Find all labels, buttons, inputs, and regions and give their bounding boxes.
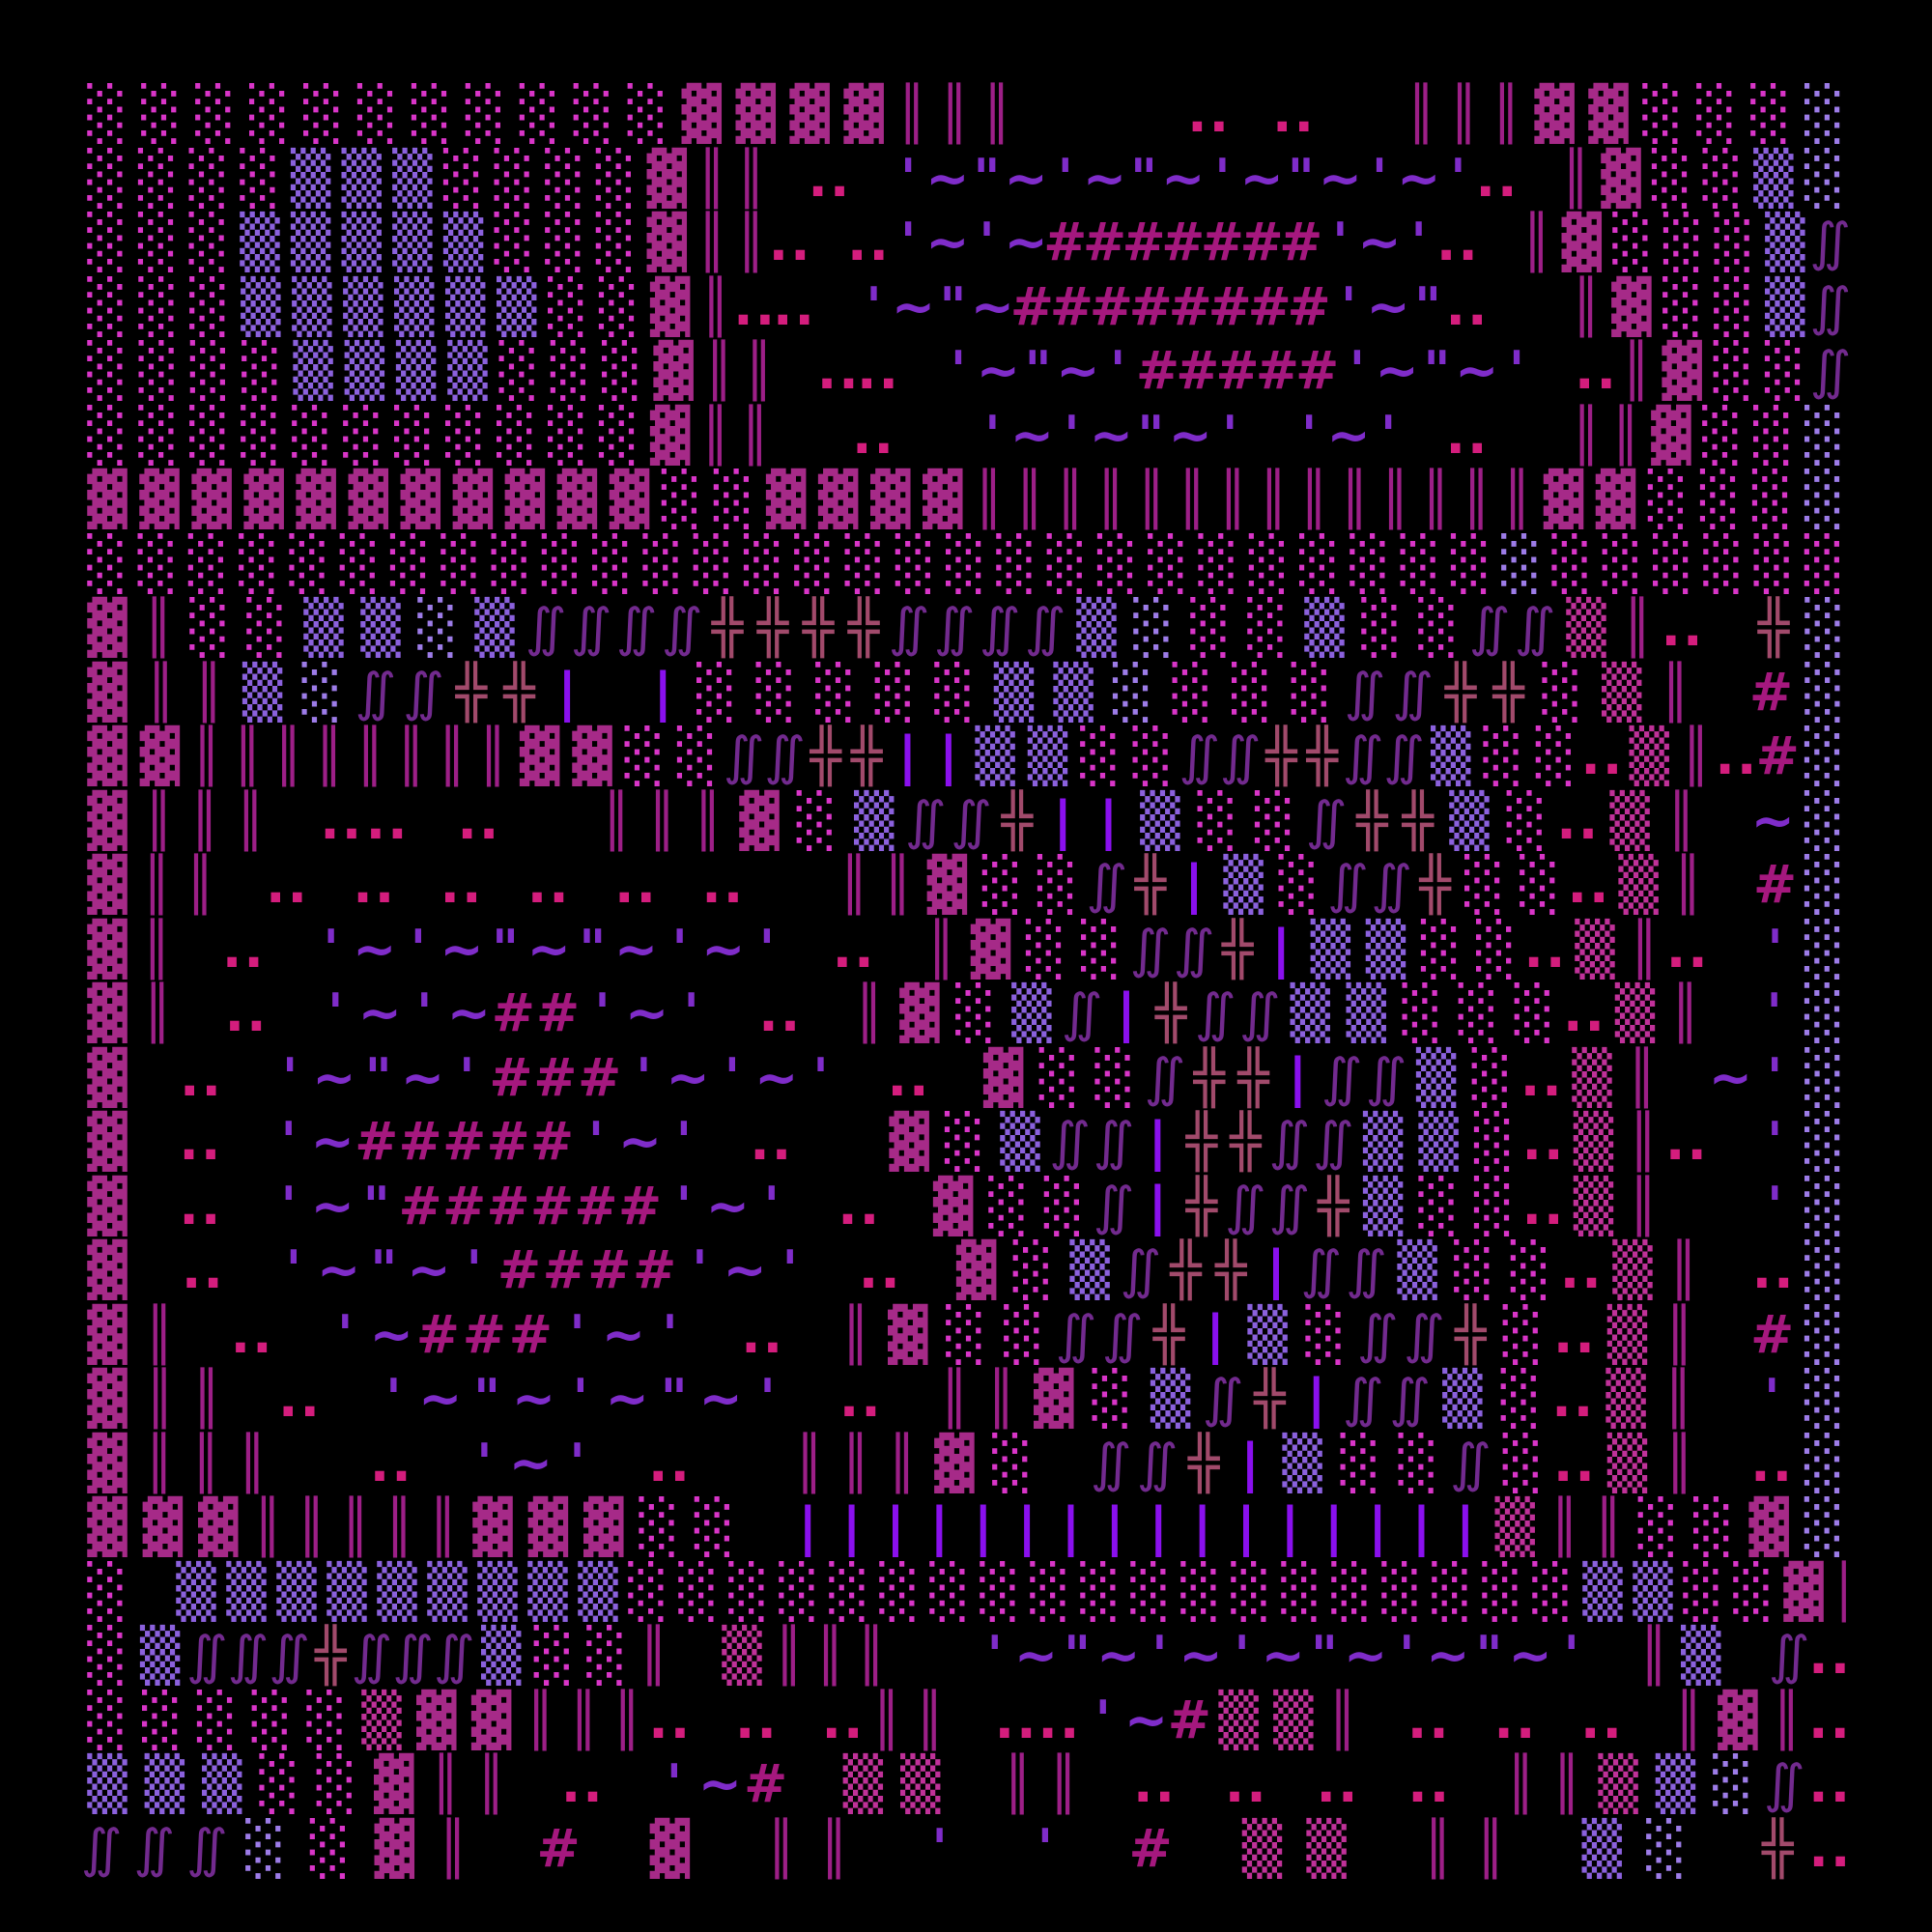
glyph-cell: ╬ bbox=[1758, 1817, 1797, 1881]
glyph-cell: ▒ bbox=[336, 211, 386, 274]
glyph-cell bbox=[1667, 1175, 1706, 1238]
glyph-cell: ░ bbox=[869, 661, 920, 724]
glyph-cell: ║ bbox=[472, 1752, 511, 1816]
glyph-cell: ▒ bbox=[1285, 981, 1335, 1045]
glyph-cell: ║ bbox=[1471, 1817, 1510, 1881]
glyph-cell: ∬ bbox=[435, 1624, 473, 1688]
glyph-cell: ░ bbox=[1125, 1560, 1176, 1624]
art-row: ░░░▒▒▒▒▒▒░░▓║.... '~"~########'~".. ║▓░░… bbox=[82, 275, 1850, 339]
glyph-cell: ║ bbox=[433, 724, 471, 788]
glyph-cell: ░ bbox=[284, 532, 334, 596]
glyph-cell: ║ bbox=[1051, 468, 1090, 531]
glyph-cell: ░ bbox=[439, 147, 489, 211]
glyph-cell: ░ bbox=[1039, 1175, 1090, 1238]
glyph-cell: ░ bbox=[1090, 1046, 1140, 1110]
glyph-cell: ║ bbox=[1768, 1689, 1806, 1752]
glyph-cell: ▒ bbox=[238, 661, 288, 724]
glyph-cell: ' bbox=[1321, 211, 1359, 274]
glyph-cell: ╬ bbox=[1167, 1238, 1206, 1302]
glyph-grid: ░░░░░░░░░░░▓▓▓▓║║║ .. .. ║║║▓▓░░░░░░░░▒▒… bbox=[82, 82, 1850, 1881]
glyph-cell: ║ bbox=[351, 724, 389, 788]
glyph-cell: ∬ bbox=[572, 596, 611, 660]
glyph-cell: ▓ bbox=[239, 468, 289, 531]
glyph-cell: ~ bbox=[700, 1752, 739, 1816]
glyph-cell: .. bbox=[184, 1238, 222, 1302]
glyph-cell: ▓ bbox=[1713, 1689, 1763, 1752]
glyph-cell: ▓ bbox=[929, 1432, 980, 1495]
glyph-cell: ∬ bbox=[1347, 1238, 1385, 1302]
glyph-cell bbox=[790, 1303, 829, 1367]
glyph-cell: ╬ bbox=[1303, 724, 1342, 788]
glyph-cell: ~ bbox=[1369, 275, 1407, 339]
glyph-cell: ~ bbox=[725, 1238, 764, 1302]
glyph-cell: ∬ bbox=[1146, 1046, 1184, 1110]
glyph-cell: ~ bbox=[442, 918, 481, 981]
glyph-cell: ░ bbox=[1294, 532, 1345, 596]
glyph-cell: ░ bbox=[1413, 1175, 1463, 1238]
glyph-cell: ▒ bbox=[1561, 596, 1611, 660]
glyph-cell: ~ bbox=[1753, 789, 1792, 853]
glyph-cell: ░ bbox=[1698, 532, 1748, 596]
glyph-cell: ∬ bbox=[952, 789, 990, 853]
glyph-cell: ░ bbox=[1395, 532, 1445, 596]
glyph-cell: ∬ bbox=[1051, 1110, 1090, 1174]
glyph-cell: ∬ bbox=[906, 789, 945, 853]
glyph-cell: ░ bbox=[1075, 1560, 1125, 1624]
glyph-cell bbox=[695, 1689, 733, 1752]
glyph-cell: ║ bbox=[1634, 1624, 1673, 1688]
glyph-cell: ▓ bbox=[134, 468, 185, 531]
glyph-cell: ░ bbox=[1747, 468, 1798, 531]
glyph-cell bbox=[1063, 82, 1101, 146]
glyph-cell: # bbox=[357, 1110, 396, 1174]
glyph-cell: " bbox=[933, 275, 972, 339]
glyph-cell: ░ bbox=[1800, 468, 1850, 531]
glyph-cell: ~ bbox=[355, 918, 394, 981]
glyph-cell bbox=[1184, 1817, 1223, 1881]
glyph-cell: ║ bbox=[981, 1367, 1020, 1431]
glyph-cell: .. bbox=[224, 918, 263, 981]
glyph-cell: # bbox=[489, 1175, 527, 1238]
glyph-cell bbox=[1712, 853, 1750, 917]
glyph-cell: ∬ bbox=[1057, 1303, 1095, 1367]
glyph-cell: | bbox=[1175, 853, 1213, 917]
glyph-cell: ║ bbox=[810, 1624, 849, 1688]
glyph-cell: .. bbox=[776, 275, 814, 339]
glyph-cell: ▒ bbox=[1218, 853, 1268, 917]
glyph-cell: ░ bbox=[185, 596, 235, 660]
glyph-cell: ~ bbox=[704, 918, 743, 981]
glyph-cell: ░ bbox=[440, 404, 491, 468]
glyph-cell bbox=[229, 1238, 268, 1302]
glyph-cell: ∬ bbox=[1451, 1432, 1490, 1495]
glyph-cell: ~ bbox=[608, 1367, 646, 1431]
glyph-cell: ▓ bbox=[979, 1046, 1029, 1110]
glyph-cell: ∬ bbox=[1092, 1432, 1130, 1495]
glyph-cell: ▓ bbox=[395, 468, 445, 531]
glyph-cell: ∬ bbox=[1470, 596, 1509, 660]
glyph-cell: ░ bbox=[657, 468, 707, 531]
glyph-cell: # bbox=[1290, 275, 1328, 339]
glyph-cell bbox=[183, 981, 221, 1045]
glyph-cell: ▓ bbox=[369, 1752, 419, 1816]
glyph-cell: | bbox=[1052, 1495, 1091, 1559]
glyph-cell bbox=[697, 1303, 736, 1367]
glyph-cell: ░ bbox=[1760, 339, 1810, 403]
glyph-cell: " bbox=[359, 1046, 398, 1110]
glyph-cell bbox=[1709, 596, 1747, 660]
glyph-cell: ▒ bbox=[372, 1560, 422, 1624]
glyph-cell: | bbox=[1138, 1110, 1177, 1174]
glyph-cell bbox=[1518, 147, 1556, 211]
glyph-cell: ║ bbox=[1567, 275, 1605, 339]
glyph-cell: ~ bbox=[1511, 1624, 1549, 1688]
glyph-cell: ║ bbox=[1497, 468, 1536, 531]
glyph-cell: ░ bbox=[543, 404, 593, 468]
glyph-cell: ~ bbox=[1127, 1689, 1166, 1752]
glyph-cell: .. bbox=[182, 1175, 220, 1238]
glyph-cell: ~ bbox=[511, 1432, 550, 1495]
glyph-cell bbox=[867, 1817, 906, 1881]
glyph-cell: ░ bbox=[136, 82, 186, 146]
glyph-cell bbox=[1367, 1689, 1406, 1752]
glyph-cell: ' bbox=[1290, 404, 1328, 468]
glyph-cell: ░ bbox=[1192, 789, 1242, 853]
glyph-cell bbox=[1364, 1752, 1403, 1816]
glyph-cell: ░ bbox=[999, 1303, 1049, 1367]
glyph-cell: ║ bbox=[1656, 661, 1694, 724]
glyph-cell bbox=[486, 853, 525, 917]
glyph-cell: .. bbox=[1570, 853, 1608, 917]
glyph-cell: ░ bbox=[1286, 661, 1336, 724]
glyph-cell: ~ bbox=[894, 275, 932, 339]
glyph-cell: ▓ bbox=[1529, 82, 1579, 146]
glyph-cell: ║ bbox=[922, 918, 960, 981]
glyph-cell: ░ bbox=[192, 1689, 242, 1752]
glyph-cell bbox=[1707, 1432, 1746, 1495]
glyph-cell: ▓ bbox=[884, 1110, 934, 1174]
glyph-cell: ∬ bbox=[1328, 853, 1367, 917]
glyph-cell: ░ bbox=[1647, 147, 1697, 211]
glyph-cell: .. bbox=[563, 1752, 602, 1816]
ascii-art-canvas: ░░░░░░░░░░░▓▓▓▓║║║ .. .. ║║║▓▓░░░░░░░░▒▒… bbox=[0, 0, 1932, 1932]
art-row: ▓║║║ .. '~' .. ║║║▓░ ∬∬╬|▒░░∬░..▒║ ..░ bbox=[82, 1432, 1850, 1495]
glyph-cell bbox=[592, 1817, 631, 1881]
glyph-cell: ░ bbox=[709, 468, 759, 531]
glyph-cell: ∬ bbox=[1063, 981, 1101, 1045]
glyph-cell: ░ bbox=[241, 596, 292, 660]
glyph-cell: .. bbox=[651, 1432, 690, 1495]
glyph-cell: ' bbox=[316, 981, 355, 1045]
glyph-cell: ' bbox=[1438, 147, 1477, 211]
glyph-cell: .. bbox=[753, 1110, 791, 1174]
glyph-cell: ║ bbox=[293, 1495, 331, 1559]
glyph-cell: ∬ bbox=[1373, 853, 1411, 917]
glyph-cell bbox=[605, 1432, 643, 1495]
glyph-cell: # bbox=[401, 1110, 440, 1174]
glyph-cell: .. bbox=[840, 1175, 879, 1238]
glyph-cell bbox=[139, 1238, 178, 1302]
glyph-cell: ' bbox=[1210, 404, 1249, 468]
glyph-cell: # bbox=[465, 1303, 503, 1367]
glyph-cell: ▒ bbox=[236, 275, 286, 339]
glyph-cell: ║ bbox=[231, 789, 270, 853]
glyph-cell: ░ bbox=[1709, 211, 1759, 274]
glyph-cell: ║ bbox=[1518, 211, 1556, 274]
glyph-cell: ░ bbox=[338, 404, 388, 468]
glyph-cell: ║ bbox=[1132, 468, 1171, 531]
glyph-cell: ▒ bbox=[1577, 1560, 1628, 1624]
glyph-cell: ▒ bbox=[235, 211, 285, 274]
glyph-cell: ░ bbox=[185, 404, 235, 468]
glyph-cell: ' bbox=[889, 211, 927, 274]
glyph-cell: ▒ bbox=[1601, 1367, 1651, 1431]
glyph-cell bbox=[1708, 789, 1747, 853]
glyph-cell: # bbox=[445, 1175, 484, 1238]
glyph-cell bbox=[1626, 1689, 1664, 1752]
glyph-cell: ▒ bbox=[1413, 1110, 1463, 1174]
glyph-cell: ▒ bbox=[1071, 596, 1122, 660]
glyph-cell: ∬ bbox=[1346, 661, 1384, 724]
glyph-cell: .. bbox=[227, 981, 266, 1045]
glyph-cell: " bbox=[357, 1175, 396, 1238]
glyph-cell: ║ bbox=[310, 724, 349, 788]
glyph-cell: ╬ bbox=[500, 661, 539, 724]
glyph-cell: ∬ bbox=[1204, 1367, 1242, 1431]
glyph-cell: | bbox=[1297, 1367, 1336, 1431]
glyph-cell: ░ bbox=[1527, 1560, 1577, 1624]
glyph-cell: .. bbox=[1667, 1110, 1706, 1174]
glyph-cell: ~ bbox=[628, 981, 667, 1045]
glyph-cell bbox=[952, 1752, 991, 1816]
glyph-cell bbox=[1181, 1752, 1220, 1816]
glyph-cell: ∬ bbox=[617, 596, 656, 660]
glyph-cell: ║ bbox=[1617, 339, 1656, 403]
glyph-cell: ▓ bbox=[761, 468, 811, 531]
glyph-cell: ▓ bbox=[648, 339, 698, 403]
glyph-cell: ~ bbox=[1429, 1624, 1467, 1688]
glyph-cell: ░ bbox=[82, 404, 132, 468]
glyph-cell: ║ bbox=[1625, 918, 1663, 981]
glyph-cell: ░ bbox=[1345, 532, 1395, 596]
glyph-cell: ▒ bbox=[1605, 789, 1655, 853]
glyph-cell: ∬ bbox=[724, 724, 763, 788]
glyph-cell: ' bbox=[1338, 339, 1377, 403]
glyph-cell: .. bbox=[269, 853, 307, 917]
glyph-cell: ║ bbox=[189, 661, 228, 724]
glyph-cell bbox=[132, 1560, 171, 1624]
glyph-cell: ▓ bbox=[552, 468, 602, 531]
glyph-cell bbox=[1667, 1046, 1706, 1110]
glyph-cell: ∬ bbox=[1026, 596, 1065, 660]
glyph-cell: ~ bbox=[529, 918, 568, 981]
glyph-cell: ║ bbox=[1623, 1046, 1662, 1110]
glyph-cell bbox=[399, 853, 438, 917]
glyph-cell: ║ bbox=[732, 147, 771, 211]
glyph-cell: ╬ bbox=[1262, 724, 1300, 788]
glyph-cell: ║ bbox=[1335, 468, 1374, 531]
glyph-cell: ▒ bbox=[1135, 789, 1185, 853]
glyph-cell: ║ bbox=[1487, 82, 1525, 146]
glyph-cell: .. bbox=[1562, 1238, 1601, 1302]
glyph-cell: # bbox=[401, 1175, 440, 1238]
glyph-cell: ║ bbox=[635, 1624, 673, 1688]
glyph-cell bbox=[279, 1432, 318, 1495]
glyph-cell: | bbox=[1270, 1495, 1309, 1559]
glyph-cell: ░ bbox=[1497, 1303, 1548, 1367]
glyph-cell: ░ bbox=[1478, 724, 1528, 788]
glyph-cell: ║ bbox=[1669, 1689, 1708, 1752]
glyph-cell: ∬ bbox=[353, 1624, 391, 1688]
glyph-cell: ║ bbox=[1664, 1238, 1703, 1302]
glyph-cell: ∬ bbox=[1314, 1110, 1352, 1174]
glyph-cell: ║ bbox=[883, 1432, 922, 1495]
glyph-cell: ~ bbox=[313, 1110, 352, 1174]
glyph-cell: ' bbox=[1497, 339, 1536, 403]
glyph-cell: ▒ bbox=[1341, 981, 1391, 1045]
glyph-cell: ░ bbox=[1335, 1432, 1385, 1495]
glyph-cell: ▓ bbox=[82, 661, 132, 724]
art-row: ▓║║ .. .. .. .. .. .. ║║▓░░∬╬|▒░∬∬╬░░..▒… bbox=[82, 853, 1850, 917]
glyph-cell: # bbox=[545, 1238, 583, 1302]
glyph-cell: ▓ bbox=[1744, 1495, 1794, 1559]
glyph-cell: ░ bbox=[297, 661, 347, 724]
glyph-cell: ░ bbox=[133, 147, 184, 211]
glyph-cell: ~ bbox=[1171, 404, 1209, 468]
glyph-cell: ░ bbox=[1326, 1560, 1377, 1624]
glyph-cell: .. bbox=[1565, 981, 1604, 1045]
glyph-cell: ░ bbox=[1075, 724, 1125, 788]
glyph-cell: ║ bbox=[850, 981, 889, 1045]
glyph-cell: ║ bbox=[139, 789, 178, 853]
glyph-cell: ▒ bbox=[135, 1624, 185, 1688]
glyph-cell: " bbox=[967, 147, 1006, 211]
glyph-cell: ' bbox=[665, 1175, 703, 1238]
glyph-cell: ░ bbox=[1025, 1560, 1075, 1624]
glyph-cell: ╬ bbox=[708, 596, 747, 660]
glyph-cell: ║ bbox=[1668, 853, 1707, 917]
glyph-cell: ░ bbox=[254, 1752, 304, 1816]
glyph-cell bbox=[1527, 275, 1566, 339]
glyph-cell: ╬ bbox=[1182, 1110, 1221, 1174]
glyph-cell: ▓ bbox=[82, 724, 132, 788]
glyph-cell: ▓ bbox=[82, 1110, 132, 1174]
glyph-cell: ~ bbox=[1092, 404, 1130, 468]
glyph-cell: ' bbox=[1052, 404, 1091, 468]
glyph-cell bbox=[1537, 339, 1576, 403]
glyph-cell: ║ bbox=[732, 211, 771, 274]
glyph-cell: .. bbox=[761, 981, 800, 1045]
glyph-cell: # bbox=[1250, 275, 1289, 339]
glyph-cell: .. bbox=[281, 1367, 320, 1431]
art-row: ▓ .. '~"~'###'~'~' .. ▓░░∬╬╬|∬∬▒░..▒║ ~'… bbox=[82, 1046, 1850, 1110]
glyph-cell: # bbox=[1753, 1303, 1792, 1367]
glyph-cell: ~ bbox=[410, 1238, 448, 1302]
glyph-cell bbox=[181, 918, 219, 981]
glyph-cell: ' bbox=[274, 1238, 313, 1302]
glyph-cell: | bbox=[1095, 1495, 1134, 1559]
glyph-cell: ▓ bbox=[82, 918, 132, 981]
glyph-cell: ░ bbox=[244, 82, 295, 146]
glyph-cell: ╬ bbox=[844, 596, 883, 660]
glyph-cell: ' bbox=[939, 339, 978, 403]
glyph-cell: ║ bbox=[1556, 147, 1595, 211]
glyph-cell: .. bbox=[744, 1303, 782, 1367]
glyph-cell: | bbox=[1358, 1495, 1397, 1559]
glyph-cell: ∬ bbox=[82, 1817, 121, 1881]
glyph-cell: ░ bbox=[587, 532, 638, 596]
art-row: ▓║║ .. '~"~'~"~' .. ║║▓░▒∬╬|∬∬▒░..▒║ '░ bbox=[82, 1367, 1850, 1431]
glyph-cell: ░ bbox=[951, 981, 1001, 1045]
glyph-cell: ▒ bbox=[336, 147, 386, 211]
glyph-cell: ▓ bbox=[82, 981, 132, 1045]
glyph-cell: ║ bbox=[1661, 1303, 1699, 1367]
glyph-cell bbox=[781, 1689, 819, 1752]
glyph-cell: ░ bbox=[1496, 532, 1547, 596]
glyph-cell: ║ bbox=[740, 339, 779, 403]
glyph-cell: | bbox=[964, 1495, 1003, 1559]
glyph-cell: .. bbox=[704, 853, 743, 917]
glyph-cell: .. bbox=[1554, 1367, 1593, 1431]
glyph-cell: ░ bbox=[412, 596, 463, 660]
glyph-cell: " bbox=[1305, 1624, 1344, 1688]
glyph-cell bbox=[1317, 82, 1355, 146]
glyph-cell: ░ bbox=[591, 147, 641, 211]
glyph-cell: ░ bbox=[1242, 596, 1293, 660]
glyph-cell: ∬ bbox=[356, 661, 395, 724]
glyph-cell: ░ bbox=[1728, 1560, 1778, 1624]
glyph-cell: ▓ bbox=[82, 596, 132, 660]
glyph-cell: ░ bbox=[739, 532, 789, 596]
glyph-cell: ░ bbox=[1637, 82, 1688, 146]
glyph-cell: ░ bbox=[1800, 1110, 1850, 1174]
glyph-cell: ▒ bbox=[82, 1752, 132, 1816]
glyph-cell: ░ bbox=[133, 339, 184, 403]
glyph-cell: ▒ bbox=[1236, 1817, 1287, 1881]
glyph-cell bbox=[780, 339, 818, 403]
glyph-cell: ~ bbox=[1016, 1624, 1055, 1688]
glyph-cell: # bbox=[577, 1175, 615, 1238]
glyph-cell: ▒ bbox=[139, 1752, 189, 1816]
glyph-cell: ▒ bbox=[287, 275, 337, 339]
glyph-cell: ▓ bbox=[641, 211, 692, 274]
glyph-cell: " bbox=[468, 1367, 506, 1431]
glyph-cell bbox=[1079, 1817, 1118, 1881]
glyph-cell bbox=[1712, 1110, 1750, 1174]
glyph-cell bbox=[791, 853, 830, 917]
art-row: ░░░░░▒▓▓║║║.. .. ..║║ ....'~#▒▒║ .. .. .… bbox=[82, 1689, 1850, 1752]
glyph-cell: ║ bbox=[762, 1817, 801, 1881]
glyph-cell: ▒ bbox=[338, 275, 388, 339]
art-row: ∬∬∬░░▓║ # ▓ ║║ ' ' # ▒▒ ║║ ▒░ ╬.. bbox=[82, 1817, 1850, 1881]
glyph-cell bbox=[1540, 1689, 1578, 1752]
glyph-cell: ▓ bbox=[895, 981, 945, 1045]
glyph-cell: ║ bbox=[1444, 82, 1483, 146]
glyph-cell: ░ bbox=[1377, 1560, 1427, 1624]
glyph-cell bbox=[878, 918, 917, 981]
glyph-cell: ▒ bbox=[439, 211, 489, 274]
glyph-cell: # bbox=[1085, 211, 1123, 274]
glyph-cell: ▒ bbox=[989, 661, 1039, 724]
glyph-cell: ▓ bbox=[1778, 1560, 1829, 1624]
glyph-cell: ▓ bbox=[1657, 339, 1707, 403]
glyph-cell: ' bbox=[748, 1367, 786, 1431]
glyph-cell: ∬ bbox=[1367, 1046, 1406, 1110]
glyph-cell: ~ bbox=[515, 1367, 554, 1431]
glyph-cell: ░ bbox=[515, 82, 565, 146]
glyph-cell: ~ bbox=[617, 918, 656, 981]
art-row: ░▒∬∬∬╬∬∬∬▒░░║ ▒║║║ '~"~'~'~"~'~"~' ║▒ ∬.… bbox=[82, 1624, 1850, 1688]
